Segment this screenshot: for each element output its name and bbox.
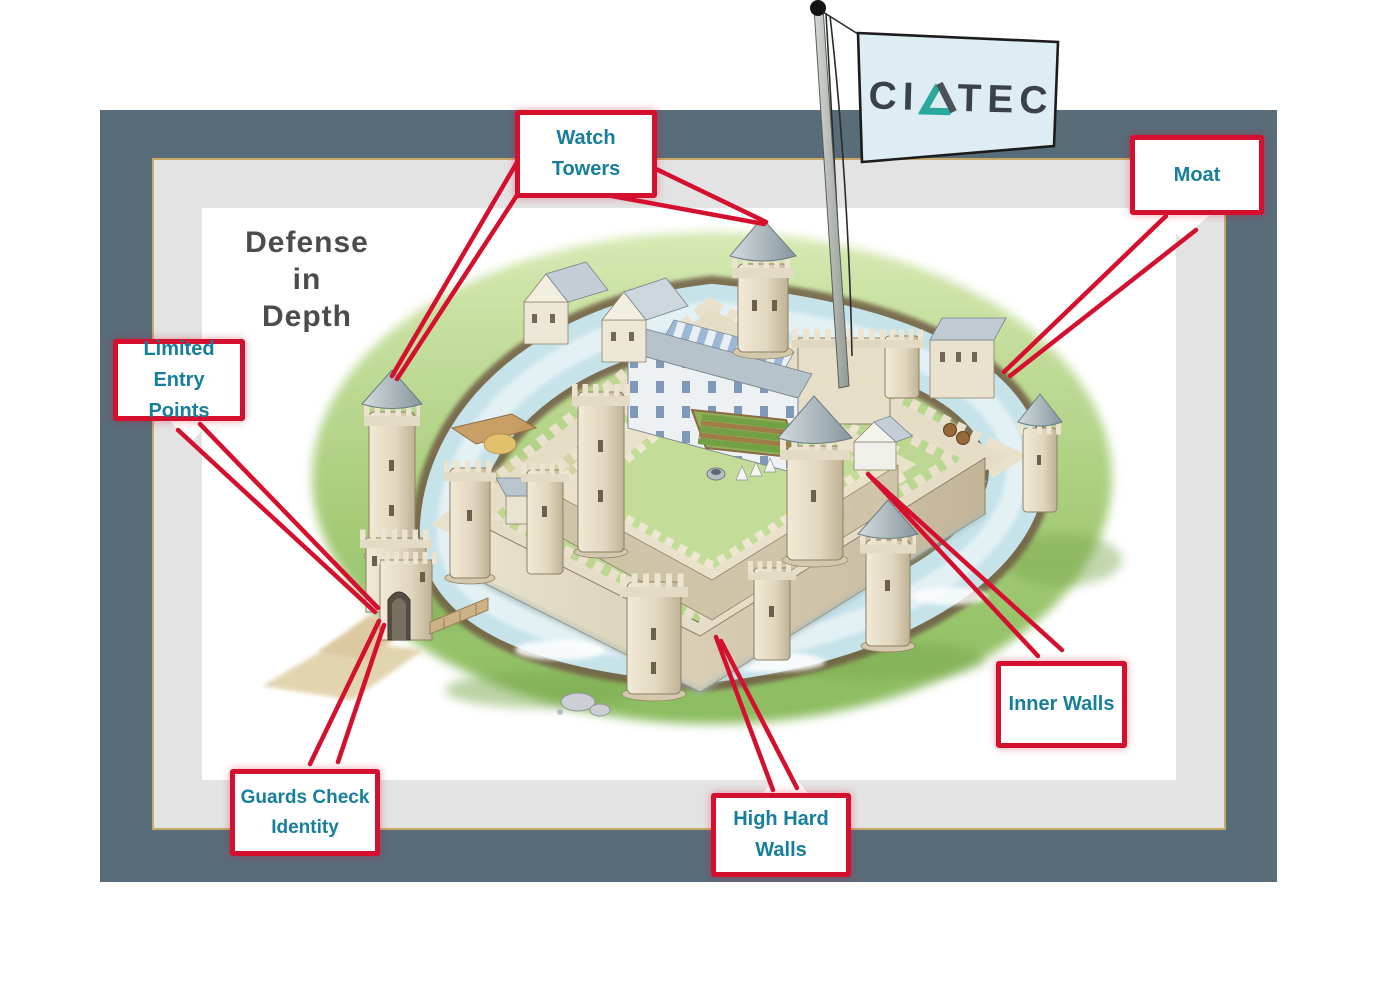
callout-high-hard-walls: High Hard Walls <box>711 793 851 877</box>
callout-inner-walls-label: Inner Walls <box>1009 689 1115 720</box>
ciatec-logo-left: CI <box>868 74 920 119</box>
callout-watch-towers: Watch Towers <box>515 110 657 198</box>
page-title: Defense in Depth <box>222 224 392 335</box>
callout-limited-entry-points: Limited Entry Points <box>113 339 245 421</box>
callout-limited-entry-points-label: Limited Entry Points <box>123 334 235 427</box>
callout-moat: Moat <box>1130 135 1264 215</box>
callout-inner-walls: Inner Walls <box>996 661 1127 748</box>
callout-watch-towers-label: Watch Towers <box>525 123 647 185</box>
callout-moat-label: Moat <box>1174 160 1221 191</box>
callout-high-hard-walls-label: High Hard Walls <box>721 804 841 866</box>
title-line: in <box>222 261 392 298</box>
callout-guards-check-identity-label: Guards Check Identity <box>240 783 370 842</box>
ciatec-logo-triangle-icon <box>918 80 957 117</box>
ciatec-logo: CI TEC <box>867 69 1054 128</box>
title-line: Defense <box>222 224 392 261</box>
callout-guards-check-identity: Guards Check Identity <box>230 769 380 856</box>
ciatec-logo-right: TEC <box>957 77 1054 124</box>
title-line: Depth <box>222 298 392 335</box>
